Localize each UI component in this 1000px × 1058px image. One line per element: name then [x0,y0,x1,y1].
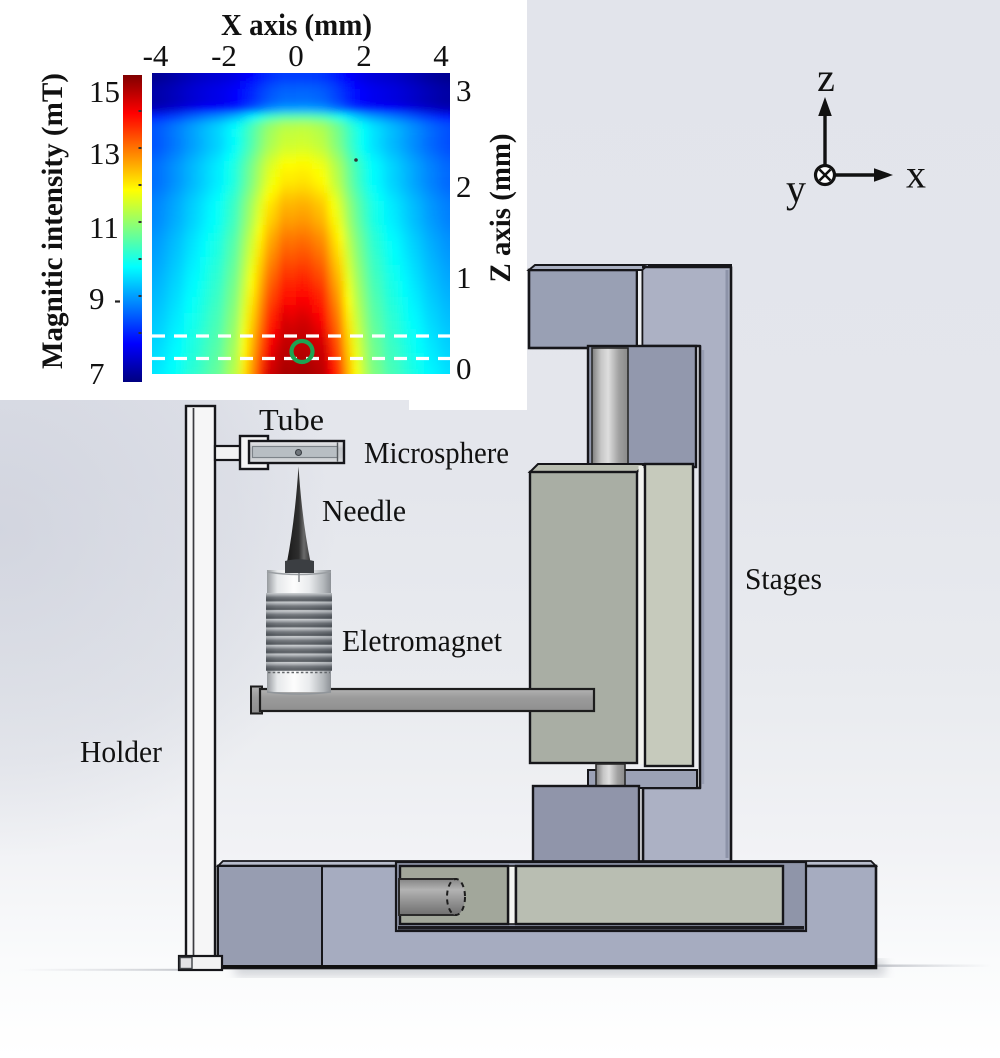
svg-text:x: x [906,152,926,197]
svg-text:Holder: Holder [80,734,163,769]
svg-text:3: 3 [456,73,472,108]
svg-text:15: 15 [89,74,120,109]
svg-text:1: 1 [456,260,472,295]
svg-text:z: z [817,55,835,100]
svg-text:y: y [786,166,806,211]
svg-text:11: 11 [89,210,119,245]
svg-text:-4: -4 [143,38,169,73]
svg-text:Microsphere: Microsphere [364,435,509,470]
svg-text:X axis (mm): X axis (mm) [221,7,372,42]
svg-text:0: 0 [288,38,304,73]
svg-text:2: 2 [356,38,372,73]
svg-text:4: 4 [433,38,449,73]
svg-text:Eletromagnet: Eletromagnet [342,623,502,658]
svg-text:Tube: Tube [259,402,324,437]
svg-text:Needle: Needle [322,493,406,528]
svg-text:2: 2 [456,169,472,204]
svg-text:Stages: Stages [745,561,822,596]
svg-text:Z axis (mm): Z axis (mm) [484,134,517,283]
svg-text:-2: -2 [211,38,237,73]
svg-text:13: 13 [89,136,120,171]
svg-text:0: 0 [456,351,472,386]
svg-text:9: 9 [89,281,105,316]
svg-text:7: 7 [89,356,105,391]
svg-text:Magnitic intensity (mT): Magnitic intensity (mT) [36,73,69,369]
